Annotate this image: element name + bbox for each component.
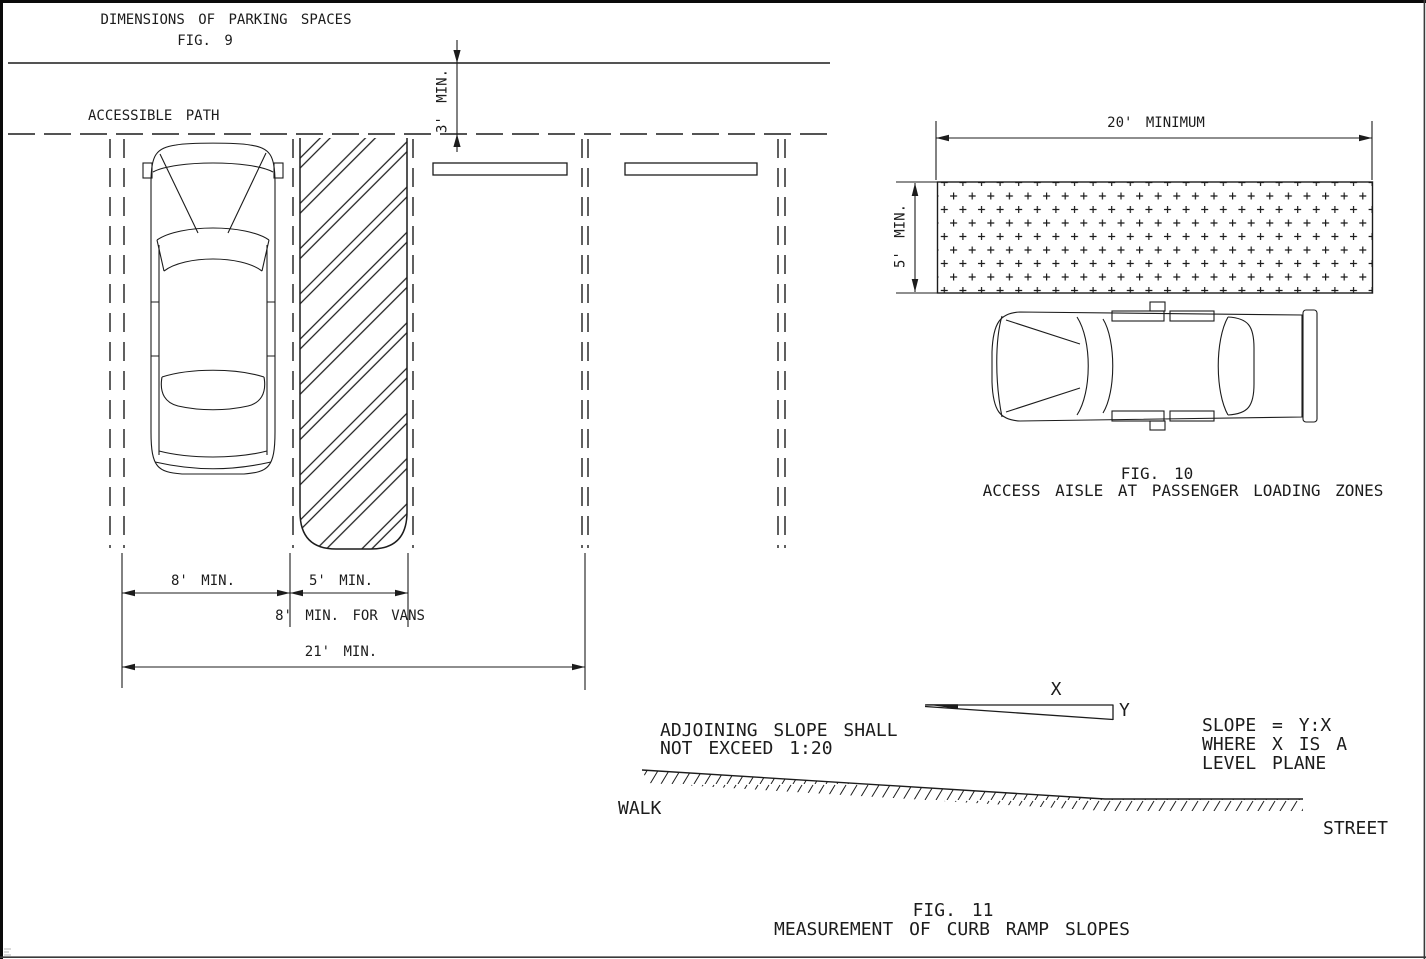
sheet-border	[0, 0, 1426, 959]
stippled-access-aisle	[938, 182, 1373, 293]
car-plan-view-icon	[143, 143, 283, 474]
side-mirror	[1150, 302, 1165, 311]
side-mirror	[1150, 421, 1165, 430]
dim-20ft-label: 20' MINIMUM	[1107, 116, 1205, 131]
wheel-stop	[625, 163, 757, 175]
street-label: STREET	[1323, 820, 1388, 839]
fig9-parking-plan	[8, 40, 830, 690]
drawing-linework	[0, 0, 1426, 959]
fig10-loading-zone	[896, 121, 1373, 430]
cad-drawing-sheet: DIMENSIONS OF PARKING SPACES FIG. 9 ACCE…	[0, 0, 1426, 959]
stall-stripes	[110, 139, 785, 548]
fig11-caption: MEASUREMENT OF CURB RAMP SLOPES	[774, 921, 1130, 940]
fig9-fig-label: FIG. 9	[177, 34, 233, 49]
access-aisle-hatch	[300, 138, 407, 549]
walk-label: WALK	[618, 800, 661, 819]
dim-21ft-label: 21' MIN.	[305, 645, 377, 660]
slope-wedge	[925, 704, 1113, 720]
corner-artifact	[4, 949, 11, 955]
dim-3ft-label: 3' MIN.	[436, 69, 451, 133]
accessible-path-label: ACCESSIBLE PATH	[88, 109, 219, 124]
dim-van-aisle-label: 8' MIN. FOR VANS	[275, 609, 425, 624]
wheel-stop	[433, 163, 567, 175]
ground-profile	[642, 770, 1303, 811]
dimension-3ft	[453, 40, 460, 152]
dim-8ft-label: 8' MIN.	[171, 574, 235, 589]
dim-5ft-label: 5' MIN.	[309, 574, 373, 589]
fig9-title: DIMENSIONS OF PARKING SPACES	[100, 13, 351, 28]
axis-x-label: X	[1051, 681, 1062, 700]
axis-y-label: Y	[1119, 702, 1130, 721]
slope-formula-line3: LEVEL PLANE	[1202, 755, 1326, 774]
dim-5ft-fig10-label: 5' MIN.	[894, 204, 909, 268]
fig10-caption: ACCESS AISLE AT PASSENGER LOADING ZONES	[983, 483, 1384, 500]
car-plan-view-icon	[992, 302, 1317, 430]
slope-note-line2: NOT EXCEED 1:20	[660, 740, 833, 759]
